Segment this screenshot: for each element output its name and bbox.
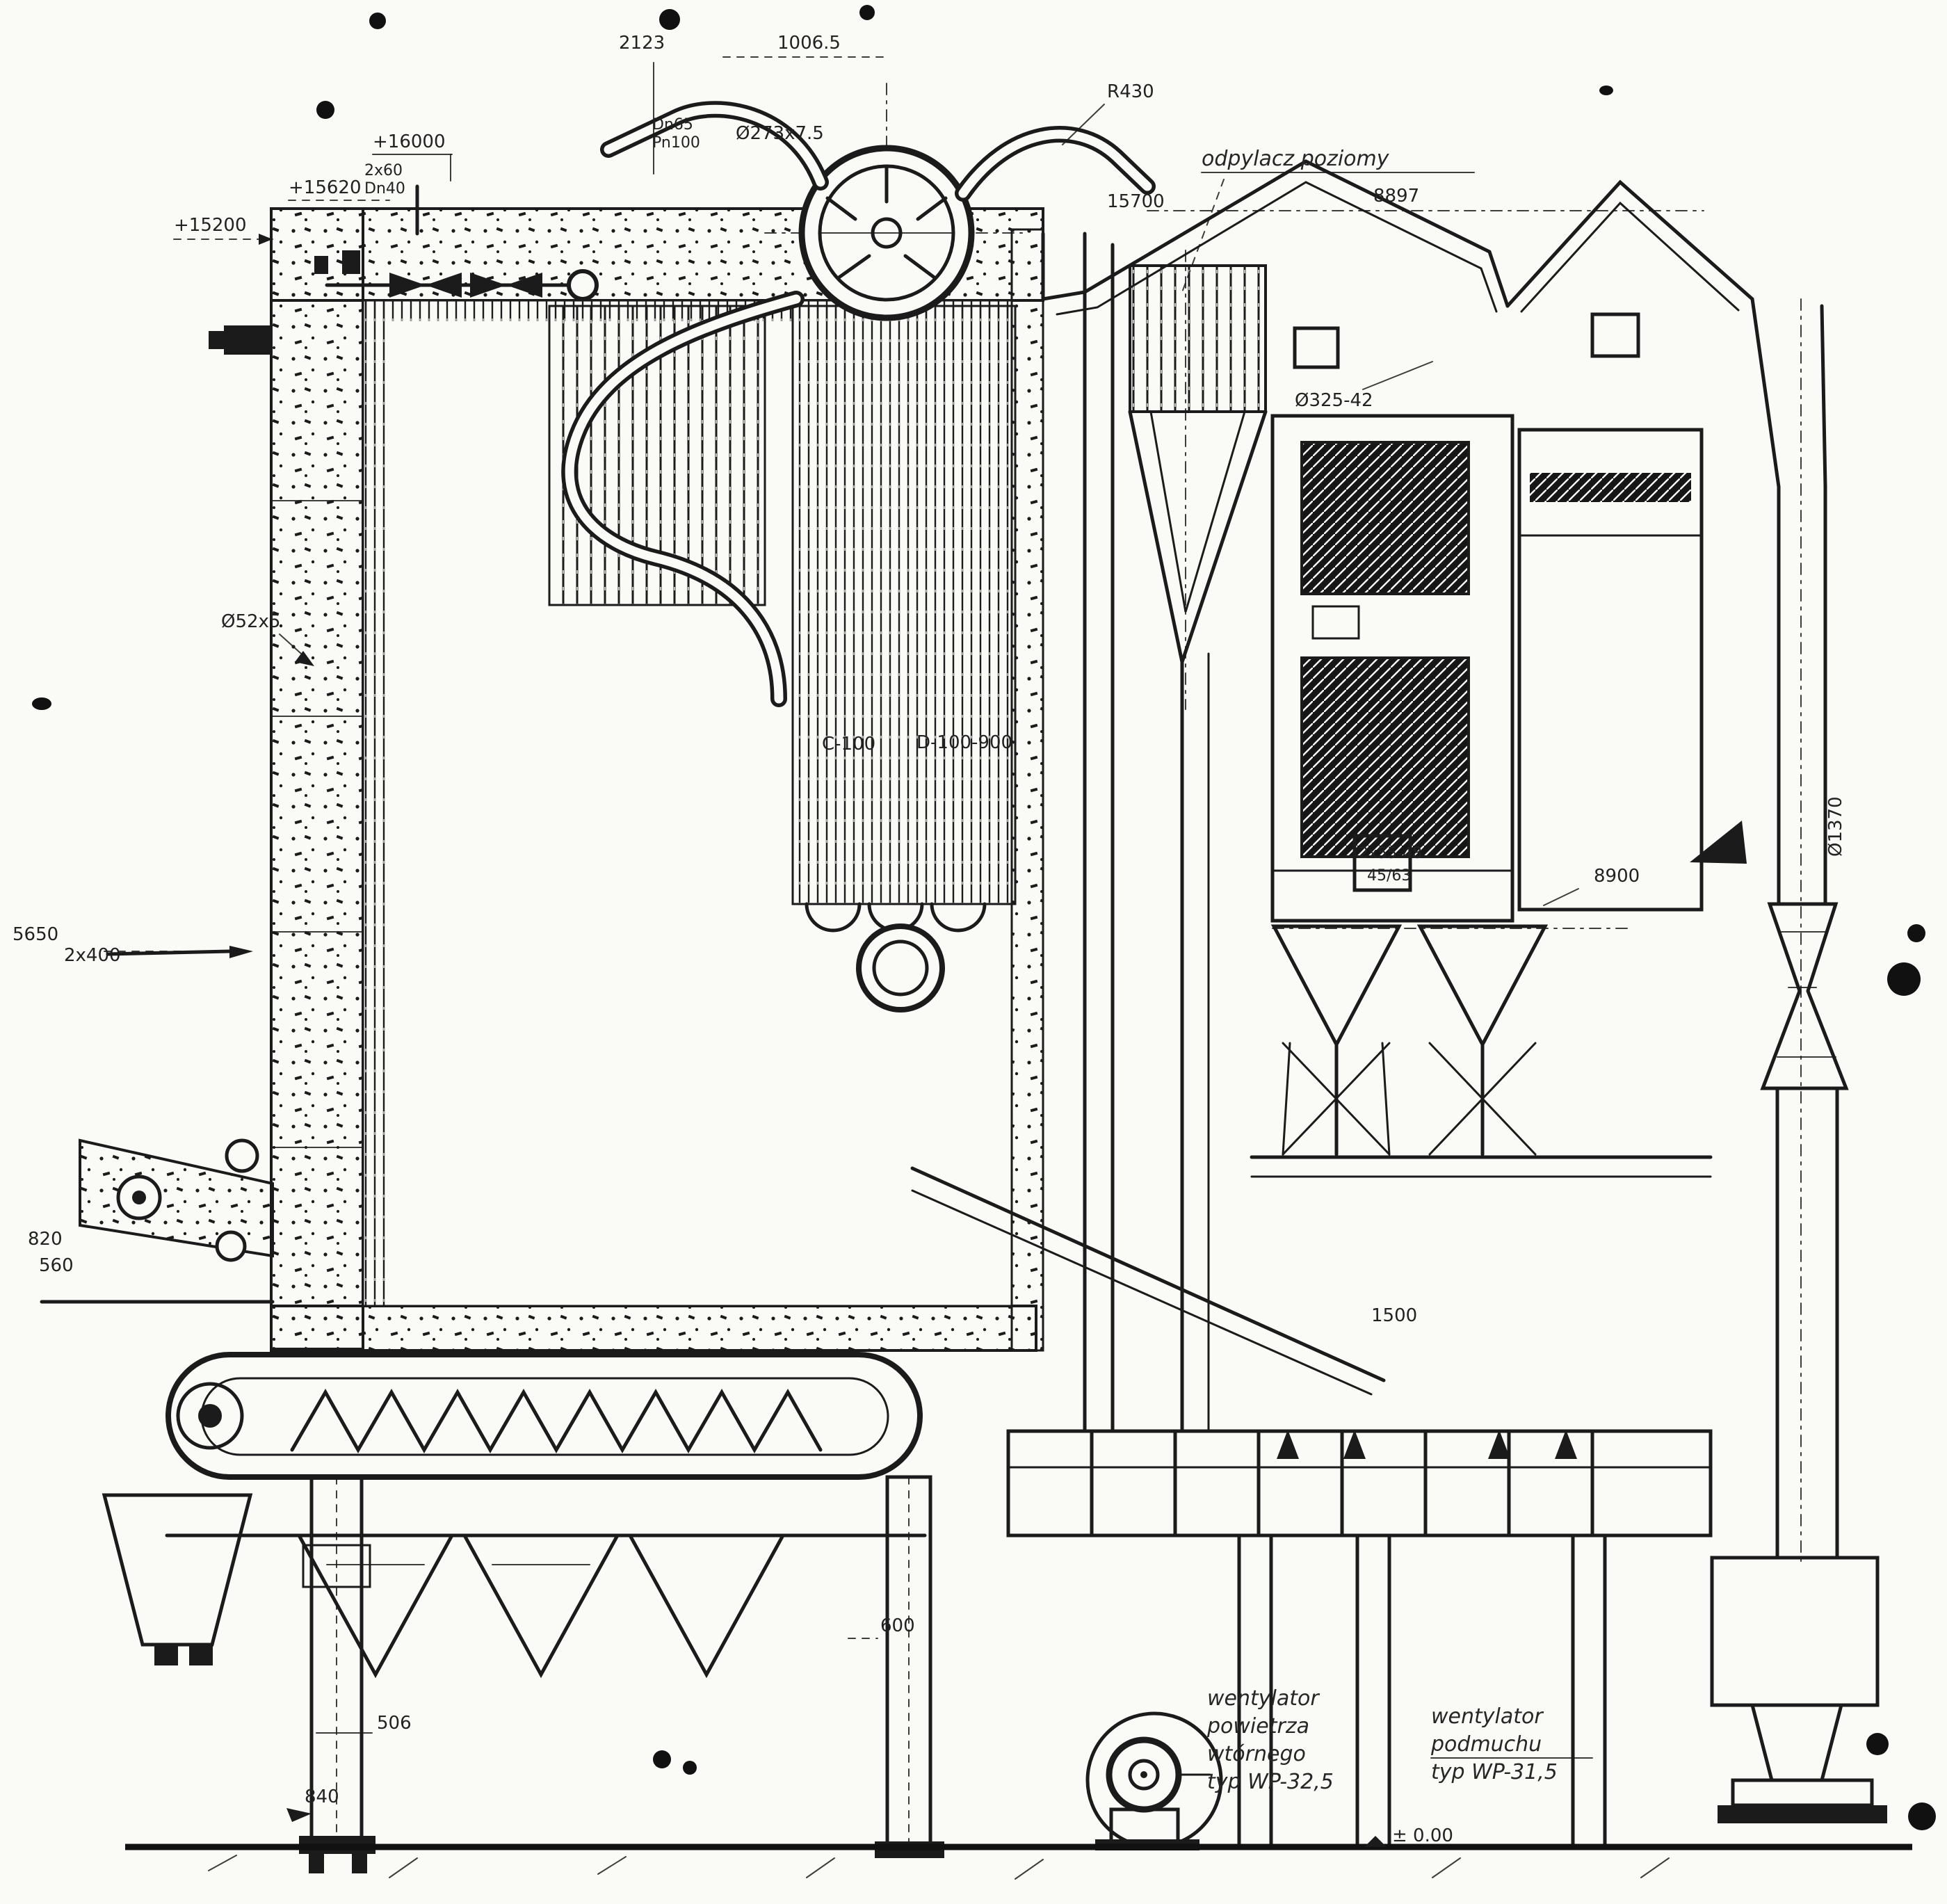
- steam-drum: [802, 148, 971, 318]
- pipe-riser2: Dn40: [364, 180, 405, 197]
- note-fan-left-line4: typ WP-32,5: [1207, 1770, 1334, 1794]
- elev-15700: 15700: [1107, 191, 1165, 212]
- dim-2123: 2123: [619, 33, 665, 54]
- stack-duct: [1690, 299, 1887, 1823]
- drawing-sheet: +16000 +15620 +15200 15700 5650 ± 0.00 2…: [0, 0, 1947, 1904]
- note-fan-left-line3: wtórnego: [1207, 1742, 1306, 1766]
- dim-820: 820: [28, 1229, 63, 1250]
- note-dust-collector: odpylacz poziomy: [1202, 147, 1390, 171]
- rear-pass-cyclone: [1085, 234, 1266, 1430]
- pipe-dn2: Pn100: [652, 134, 700, 152]
- pipe-52: Ø52x5: [221, 611, 280, 632]
- elev-15620: +15620: [289, 177, 362, 198]
- ash-hoppers: [104, 1495, 783, 1675]
- pipe-box2: 45/63: [1367, 867, 1411, 885]
- dim-8900: 8900: [1594, 866, 1640, 887]
- elev-16000: +16000: [373, 131, 446, 152]
- pipe-273: Ø273x7.5: [736, 123, 824, 144]
- pipe-box1: 2x55-48: [1359, 845, 1422, 862]
- dust-hoppers: [1252, 926, 1711, 1177]
- wall-nozzle: [224, 325, 273, 355]
- elev-ground: ± 0.00: [1392, 1825, 1453, 1846]
- note-fan-left-line2: powietrza: [1206, 1714, 1309, 1738]
- draft-fan: [1088, 1713, 1221, 1850]
- dim-840: 840: [305, 1786, 339, 1807]
- dim-1500: 1500: [1371, 1305, 1417, 1326]
- pipe-325: Ø325-42: [1295, 390, 1373, 411]
- note-fan-right-line3: typ WP-31,5: [1431, 1760, 1558, 1784]
- pipe-r430: R430: [1107, 81, 1154, 102]
- ground-line: [125, 1836, 1912, 1879]
- pipe-c100: C-100: [822, 734, 875, 755]
- pipe-riser1: 2x60: [364, 162, 403, 179]
- dim-506: 506: [377, 1713, 412, 1734]
- dim-600: 600: [880, 1615, 915, 1636]
- note-fan-left-line1: wentylator: [1207, 1686, 1320, 1711]
- dim-1006-5: 1006.5: [777, 33, 841, 54]
- boiler-cross-section-drawing: +16000 +15620 +15200 15700 5650 ± 0.00 2…: [0, 0, 1947, 1904]
- secondary-air-duct: [42, 1140, 273, 1302]
- pipe-dn1: Dn65: [652, 116, 693, 134]
- elev-15200: +15200: [174, 215, 247, 236]
- dim-560: 560: [39, 1255, 74, 1276]
- ground-level-mark: [1364, 1836, 1387, 1847]
- pipe-1370: Ø1370: [1825, 796, 1846, 857]
- note-fan-right-line2: podmuchu: [1430, 1732, 1542, 1757]
- dim-8897: 8897: [1373, 186, 1419, 207]
- note-fan-right-line1: wentylator: [1431, 1704, 1544, 1729]
- elev-5650: 5650: [13, 924, 58, 945]
- pipe-d100: D-100-900: [916, 732, 1012, 753]
- flow-arrow-right-duct: [1690, 821, 1747, 864]
- note-fan-right: wentylator podmuchu typ WP-31,5: [1430, 1704, 1592, 1784]
- chain-grate: [167, 1355, 925, 1535]
- lower-drum: [859, 926, 942, 1010]
